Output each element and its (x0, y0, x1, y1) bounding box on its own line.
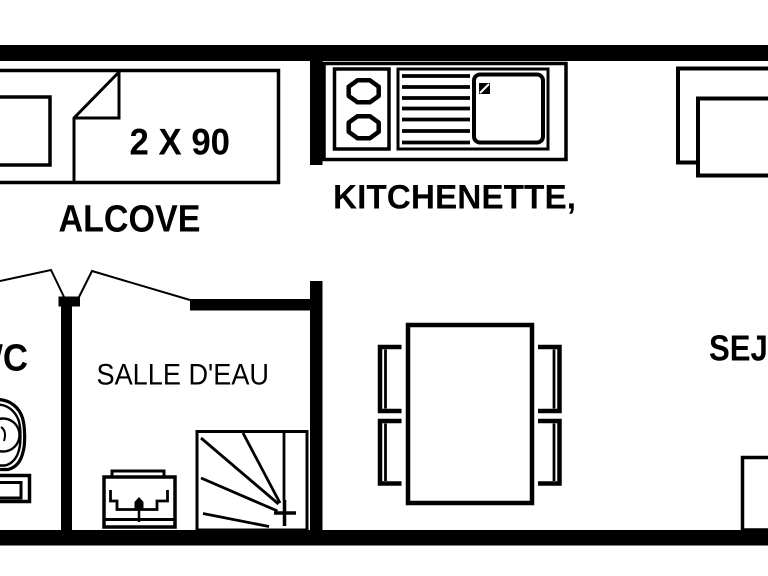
svg-text:ALCOVE: ALCOVE (59, 198, 201, 240)
svg-text:WC: WC (0, 338, 28, 380)
svg-text:KITCHENETTE,: KITCHENETTE, (333, 179, 576, 217)
svg-text:SEJOUR: SEJOUR (709, 327, 768, 368)
svg-text:2 X 90: 2 X 90 (130, 122, 231, 163)
svg-text:SALLE D'EAU: SALLE D'EAU (97, 359, 270, 392)
